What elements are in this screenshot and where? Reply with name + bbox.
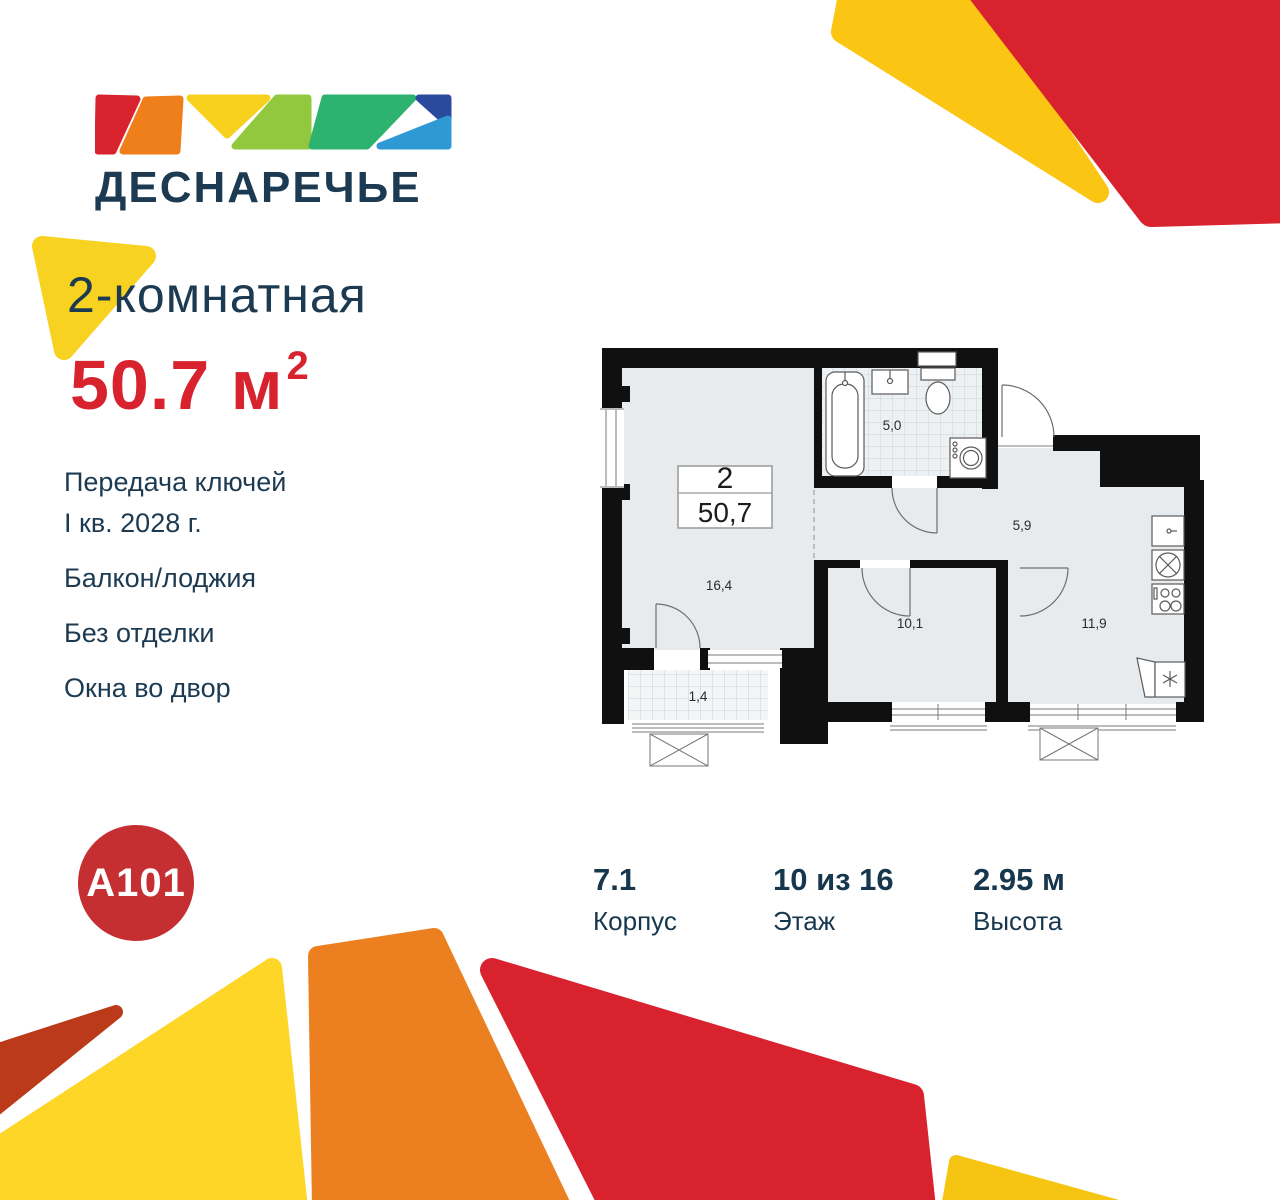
hob-icon: [1152, 550, 1184, 580]
bottom-shapes: [0, 938, 1122, 1200]
stove-icon: [1152, 584, 1184, 614]
balcony-area-label: 1,4: [689, 689, 708, 704]
deco-yellow-wedge-right: [948, 1162, 1122, 1200]
bathroom-area-label: 5,0: [883, 418, 902, 433]
listing-area: 50.7 м2: [70, 344, 310, 425]
feature-windows: Окна во двор: [64, 668, 286, 709]
stat-floor-label: Этаж: [773, 908, 894, 934]
stat-building-value: 7.1: [593, 864, 677, 895]
ac-baskets: [650, 728, 1098, 766]
bath-shelf-icon: [918, 352, 956, 366]
feature-balcony: Балкон/лоджия: [64, 558, 286, 599]
bedroom-area-label: 10,1: [897, 616, 923, 631]
deco-yellow-triangle-bottom: [0, 968, 298, 1200]
bedroom-floor: [828, 568, 996, 702]
entry-door-arc: [1002, 385, 1054, 437]
plan-total-area: 50,7: [698, 497, 753, 528]
fridge-icon: [1137, 658, 1185, 697]
washing-machine-icon: [950, 438, 986, 478]
stat-building: 7.1 Корпус: [593, 864, 677, 934]
listing-title: 2-комнатная: [67, 266, 367, 324]
area-unit: м: [231, 346, 284, 424]
stat-height-value: 2.95 м: [973, 864, 1065, 895]
sink-icon: [872, 370, 908, 394]
developer-badge: A101: [78, 825, 194, 941]
balcony-window: [708, 650, 782, 668]
developer-name: A101: [86, 861, 186, 906]
project-name: ДЕСНАРЕЧЬЕ: [95, 166, 452, 210]
floor-plan: 2 50,7 5,0 5,9 16,4 10,1 11,9 1,4: [592, 338, 1210, 768]
kitchen-window: [1030, 704, 1176, 720]
stat-floor: 10 из 16 Этаж: [773, 864, 894, 934]
project-logo: ДЕСНАРЕЧЬЕ: [95, 94, 452, 210]
hallway-area-label: 5,9: [1013, 518, 1032, 533]
kitchen-area-label: 11,9: [1081, 616, 1106, 631]
bathtub-icon: [826, 372, 864, 476]
feature-list: Передача ключей I кв. 2028 г. Балкон/лод…: [64, 462, 286, 723]
listing-card: { "brand": { "name": "ДЕСНАРЕЧЬЕ", "deve…: [0, 0, 1280, 1200]
plan-label-box: 2 50,7: [678, 462, 772, 528]
kitchen-sink-icon: [1152, 516, 1184, 546]
project-logo-shapes: [95, 94, 452, 155]
plan-rooms-count: 2: [717, 462, 734, 495]
deco-red-triangle-bottom: [492, 970, 924, 1200]
area-value: 50.7: [70, 346, 210, 424]
living-room-area-label: 16,4: [706, 578, 733, 593]
feature-finishing: Без отделки: [64, 613, 286, 654]
stat-floor-value: 10 из 16: [773, 864, 894, 895]
stat-height-label: Высота: [973, 908, 1065, 934]
top-right-shapes: [842, 0, 1280, 212]
living-window: [600, 408, 624, 488]
feature-keys-date: Передача ключей I кв. 2028 г.: [64, 462, 286, 544]
stat-height: 2.95 м Высота: [973, 864, 1065, 934]
stat-building-label: Корпус: [593, 908, 677, 934]
area-superscript: 2: [287, 344, 310, 388]
